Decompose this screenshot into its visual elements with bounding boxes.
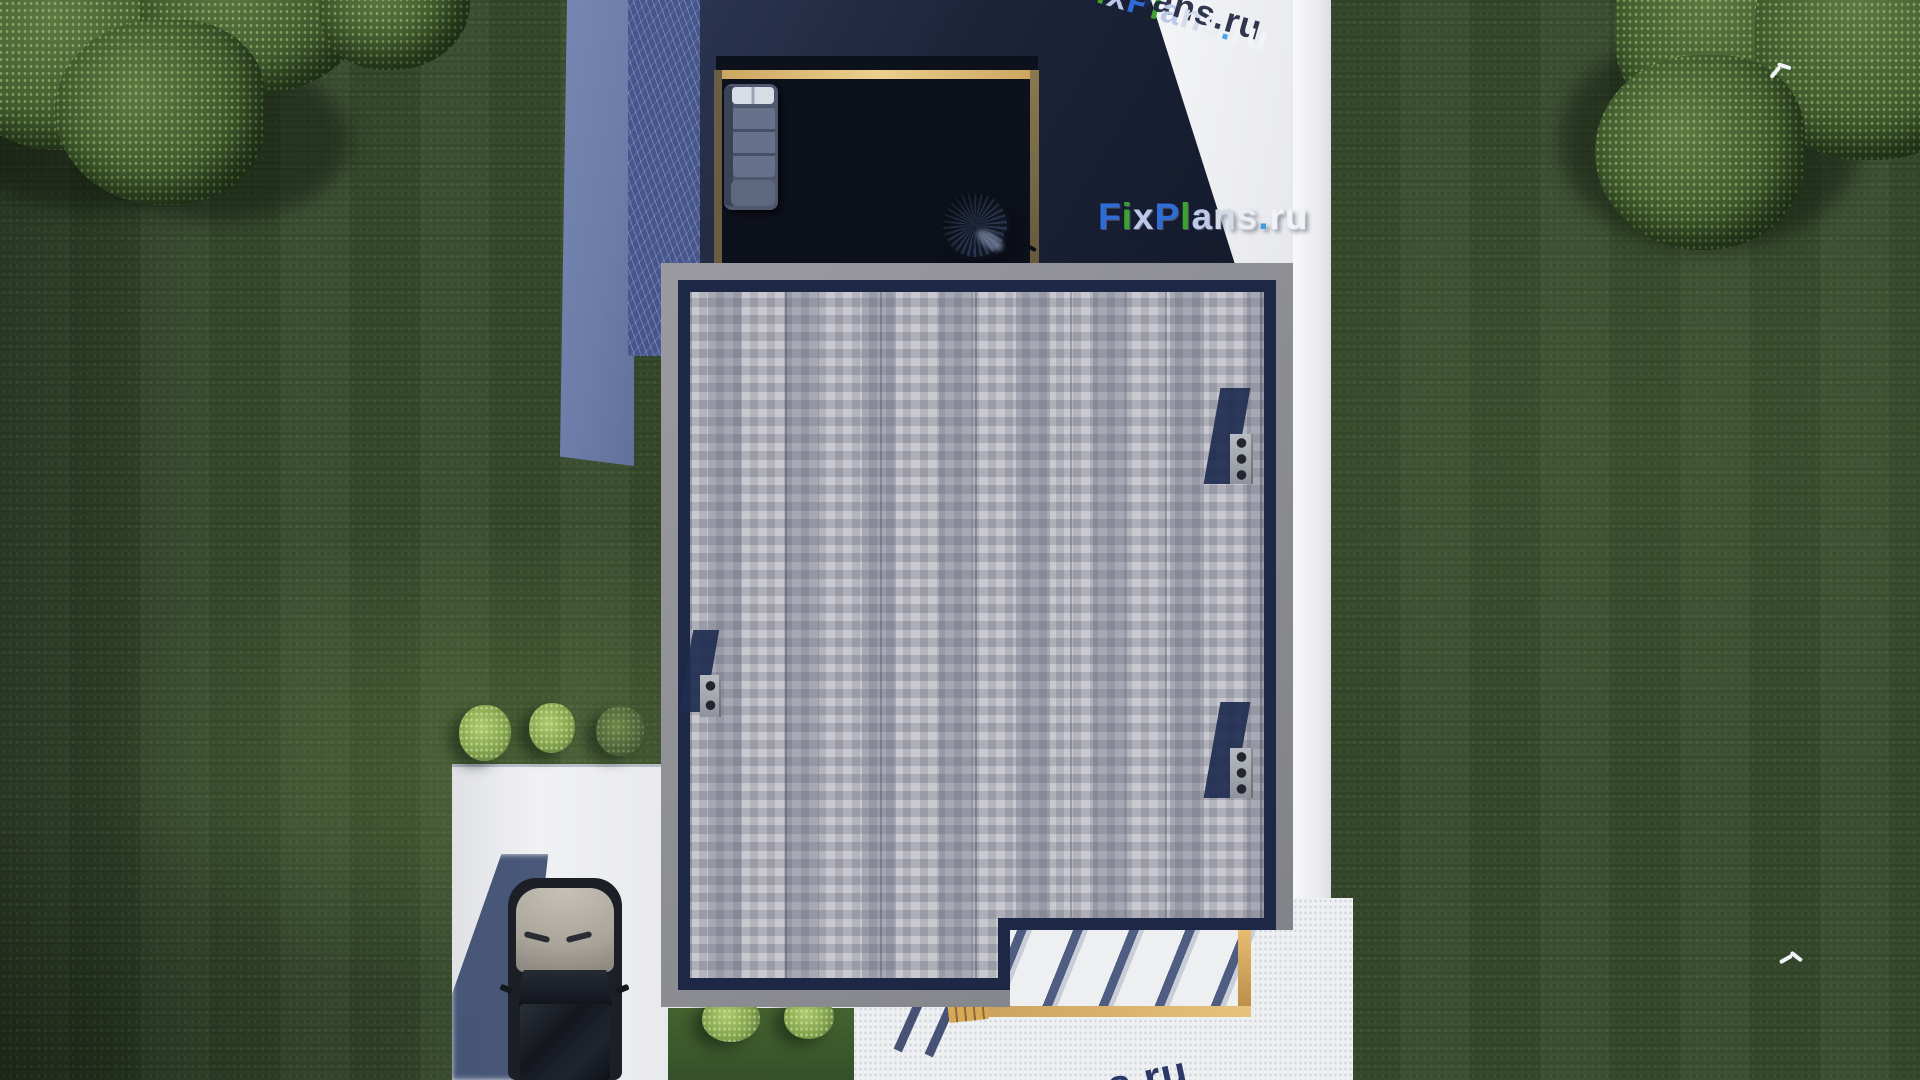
roof-vent-chimney bbox=[700, 675, 721, 717]
terrace-gold-frame-left bbox=[714, 70, 722, 268]
tree-canopy bbox=[55, 20, 265, 205]
flat-roof bbox=[661, 263, 1293, 1007]
sofa-end-cushion bbox=[731, 180, 775, 206]
sofa-cushions bbox=[733, 107, 775, 177]
car bbox=[508, 878, 622, 1080]
bird-wing bbox=[1769, 66, 1781, 79]
pergola-gold-beam bbox=[1238, 928, 1251, 1014]
roof-vent-chimney bbox=[1230, 434, 1253, 484]
aerial-house-render: FixPlans.ru FixPlans.ru FixPlans.ru bbox=[0, 0, 1920, 1080]
tree-canopy bbox=[1595, 55, 1805, 250]
car-windshield bbox=[518, 970, 612, 1006]
roof-vent-chimney bbox=[1230, 748, 1253, 798]
white-path-side bbox=[1293, 0, 1331, 915]
car-roof bbox=[520, 1004, 610, 1080]
watermark-fixplans: FixPlans.ru bbox=[1098, 196, 1309, 238]
terrace-gold-frame-top bbox=[717, 70, 1037, 79]
outdoor-sofa bbox=[724, 84, 778, 210]
roof-shingles bbox=[690, 292, 1264, 978]
car-hood bbox=[516, 888, 614, 972]
concrete-pad bbox=[560, 0, 634, 466]
white-bird bbox=[1778, 949, 1806, 968]
pergola-gold-beam bbox=[963, 1006, 1251, 1017]
round-bush bbox=[459, 705, 511, 761]
sofa-pillows bbox=[732, 87, 774, 104]
round-hanging-chair bbox=[939, 189, 1011, 261]
round-bush bbox=[529, 703, 575, 753]
terrace-gold-frame-right bbox=[1030, 70, 1039, 268]
round-bush-shaded bbox=[596, 706, 644, 756]
